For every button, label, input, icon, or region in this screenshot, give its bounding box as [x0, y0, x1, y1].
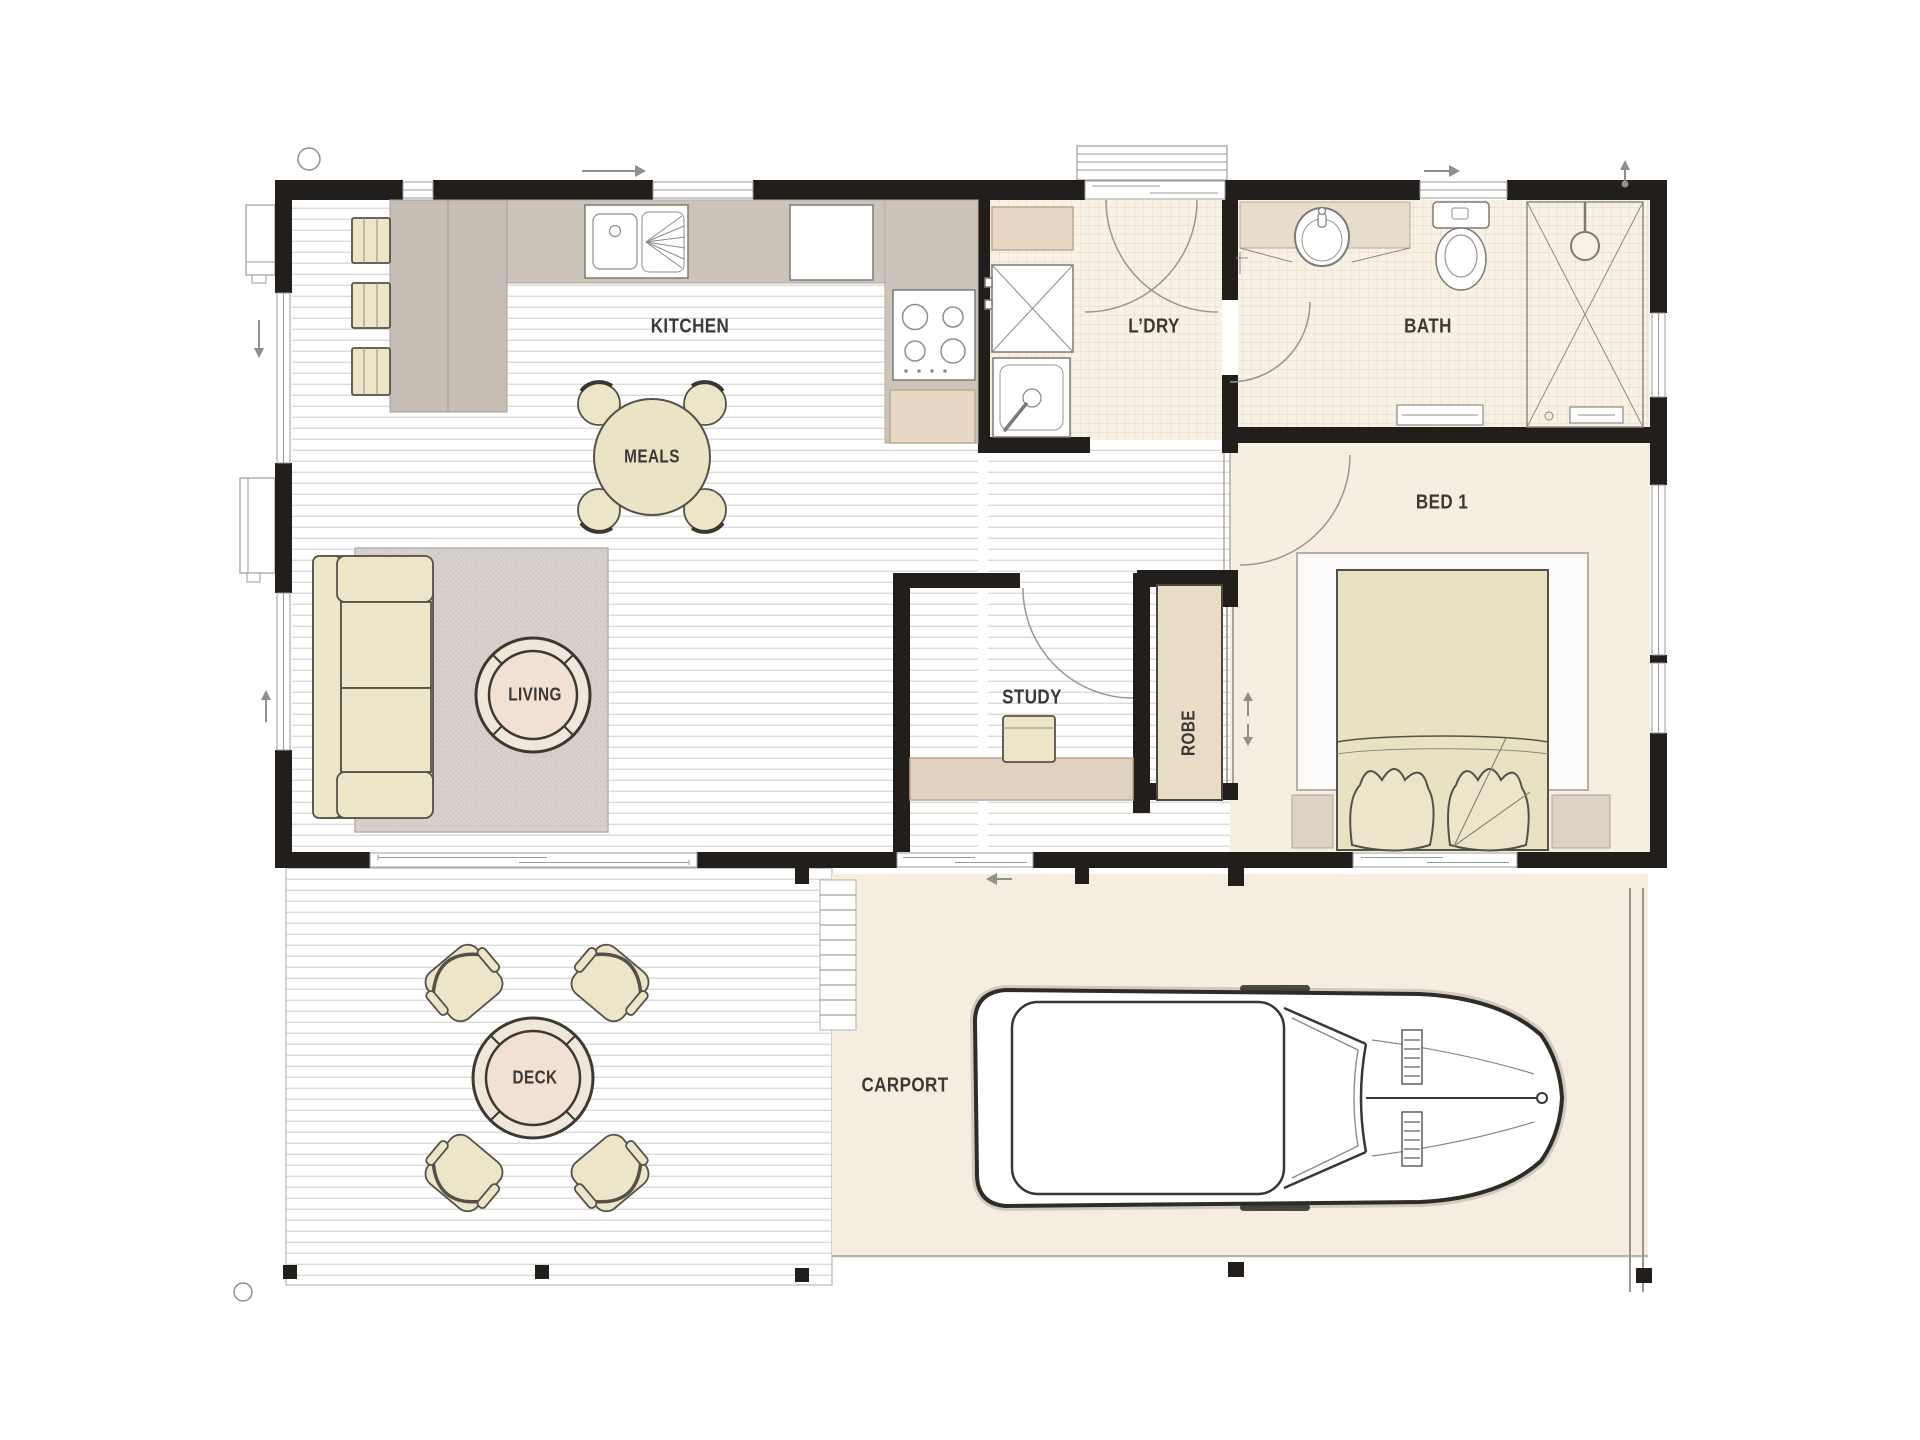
bath-side-window	[1652, 313, 1665, 397]
bed	[1337, 570, 1548, 851]
hood-vent	[1402, 1112, 1422, 1166]
wall-bath-bedroom	[1222, 427, 1650, 443]
room-label-bath: BATH	[1404, 316, 1452, 339]
bar-stool	[352, 348, 390, 395]
external-unit-icon	[246, 205, 275, 283]
room-label-bed1: BED 1	[1416, 492, 1468, 515]
room-label-study: STUDY	[1002, 687, 1062, 710]
carport-post	[1636, 1268, 1652, 1283]
towel-bench-icon	[1397, 405, 1483, 425]
floor-plan-drawing	[0, 0, 1920, 1440]
carport-post	[1228, 1262, 1244, 1277]
wall-study-left	[893, 573, 910, 852]
wall-laundry-bath	[1222, 200, 1238, 300]
downpipe-marker-icon	[298, 148, 320, 170]
bedroom-sliding-door	[1353, 853, 1517, 867]
room-label-deck: DECK	[512, 1068, 557, 1089]
bar-stool	[352, 283, 390, 328]
study-desk	[910, 758, 1133, 800]
external-unit-icon	[240, 478, 275, 582]
car	[975, 985, 1562, 1211]
left-window	[277, 593, 290, 750]
right-arrow-icon	[1424, 165, 1460, 177]
deck-sliding-door	[370, 853, 697, 867]
down-arrow-icon	[254, 320, 264, 358]
deck-post	[535, 1265, 549, 1279]
laundry-bench	[992, 207, 1073, 250]
laundry-door-threshold	[1085, 181, 1225, 199]
bedroom	[1292, 553, 1610, 851]
left-window	[277, 293, 290, 463]
car-cabin	[1012, 1002, 1284, 1194]
deck-post	[283, 1265, 297, 1279]
sofa	[313, 556, 433, 818]
nightstand	[1292, 795, 1333, 848]
toilet-icon	[1433, 202, 1489, 290]
pillow	[1448, 769, 1529, 851]
floor-plan: KITCHEN MEALS L’DRY BATH BED 1 STUDY ROB…	[0, 0, 1920, 1440]
room-label-carport: CARPORT	[861, 1075, 948, 1098]
kitchen-window	[653, 182, 753, 198]
room-label-living: LIVING	[508, 685, 562, 706]
kitchen-sink-icon	[585, 205, 688, 278]
room-label-kitchen: KITCHEN	[651, 316, 730, 339]
wall-study-right	[1133, 573, 1150, 813]
nightstand	[1552, 795, 1610, 848]
hood-vent	[1402, 1030, 1422, 1084]
room-label-robe: ROBE	[1179, 710, 1200, 756]
deck-stairs	[820, 880, 856, 1030]
right-arrow-icon	[582, 165, 646, 177]
robe-closet	[1157, 585, 1222, 800]
downpipe-marker-icon	[234, 1283, 252, 1301]
bath-window	[1420, 182, 1507, 198]
living-setting	[313, 548, 608, 832]
room-label-meals: MEALS	[624, 447, 680, 468]
wall-laundry-bottom	[978, 437, 1090, 453]
vent-window	[403, 182, 433, 198]
study-chair	[1003, 716, 1055, 762]
bedroom-window	[1652, 485, 1665, 655]
bar-stool	[352, 218, 390, 263]
bedroom-window	[1652, 663, 1665, 733]
wall-kitchen-laundry	[978, 200, 990, 453]
pillow	[1350, 769, 1433, 851]
hot-water-platform-icon	[1077, 146, 1227, 180]
laundry	[985, 207, 1073, 437]
up-arrow-icon	[261, 690, 271, 722]
room-label-laundry: L’DRY	[1128, 316, 1180, 339]
hall-sliding-door	[897, 853, 1033, 867]
fridge-icon	[790, 205, 873, 280]
washing-machine-icon	[985, 265, 1073, 352]
wall-study-top	[910, 573, 1020, 588]
kitchen-base-cabinet	[890, 390, 975, 443]
cooktop-icon	[893, 290, 975, 380]
laundry-tub-icon	[993, 358, 1070, 437]
deck-post	[795, 1268, 809, 1282]
